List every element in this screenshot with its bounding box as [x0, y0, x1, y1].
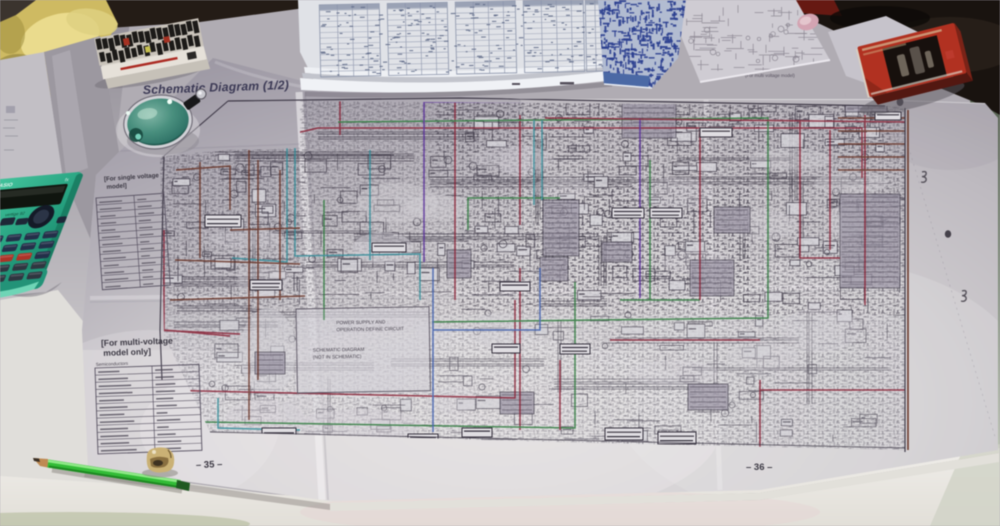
svg-text:model]: model]: [106, 182, 127, 190]
svg-text:POWER SUPPLY AND: POWER SUPPLY AND: [336, 319, 386, 326]
svg-text:model only]: model only]: [103, 346, 151, 358]
svg-text:SCHEMATIC DIAGRAM: SCHEMATIC DIAGRAM: [313, 347, 365, 354]
svg-text:– 35 –: – 35 –: [196, 459, 223, 471]
svg-text:OPERATION DEFINE CIRCUIT: OPERATION DEFINE CIRCUIT: [336, 326, 404, 333]
svg-text:(NOT IN SCHEMATIC): (NOT IN SCHEMATIC): [313, 354, 362, 361]
svg-text:– 36 –: – 36 –: [746, 462, 772, 473]
